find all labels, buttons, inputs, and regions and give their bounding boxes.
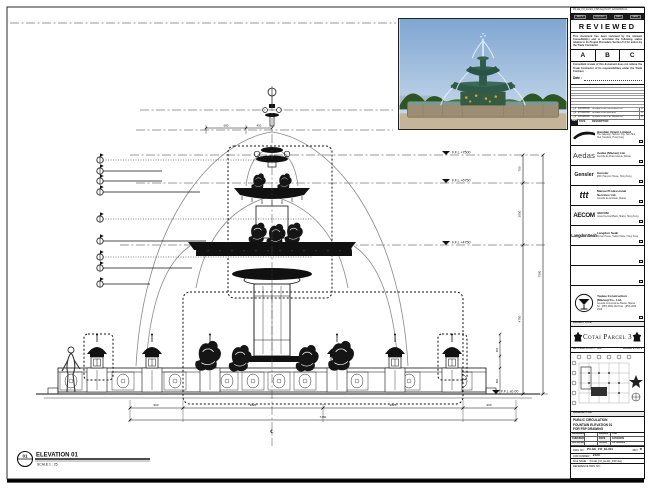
- svg-text:800: 800: [495, 378, 499, 383]
- date-fill-line[interactable]: [584, 77, 642, 81]
- gensler-logo: Gensler: [571, 172, 597, 178]
- handian-swoosh-icon: [571, 131, 597, 140]
- consultant-row-langdonseah: LangdonSeah Langdon Seah Dorset House, T…: [571, 226, 644, 246]
- consultant-panel: Handian Orient Limited The Gateway, Harb…: [571, 126, 644, 286]
- bottom-dimensions: 900 2825 2825 900 7450 ℄: [129, 400, 518, 435]
- svg-text:4750: 4750: [518, 315, 522, 322]
- consultant-row-handian: Handian Orient Limited The Gateway, Harb…: [571, 126, 644, 146]
- view-title: 01 ELEVATION 01 SCALE 1 : 25: [18, 452, 151, 467]
- key-plan-drawing: [571, 353, 644, 411]
- revision-table: △1 10/03/2009 ISSUED FOR INFORMATION A △…: [571, 85, 644, 126]
- mps-logo: ttt: [571, 190, 597, 201]
- stamp-grade-row: A B C: [571, 49, 644, 62]
- view-scale-label: SCALE 1 : 25: [37, 463, 58, 467]
- svg-text:2000: 2000: [518, 210, 522, 217]
- aecom-logo: AECOM: [571, 212, 597, 219]
- photo-inset: [398, 18, 568, 130]
- fountain-photo: [399, 19, 567, 129]
- centreline-symbol-icon: ℄: [269, 429, 274, 435]
- consultant-row-gensler: Gensler Gensler 28/F, Harcourt House, Ho…: [571, 166, 644, 186]
- revision-table-header: REV DATE DESCRIPTION: [571, 120, 644, 125]
- svg-text:7450: 7450: [320, 415, 327, 419]
- reviewed-stamp: REC'D DOC NO. REV DATE REVIEWED This doc…: [571, 14, 644, 85]
- key-plan: [571, 353, 644, 412]
- project-title-row: Cotai Parcel 3: [571, 327, 644, 348]
- contractor-block: Yaulee Construction (Macau) Co., Ltd. Av…: [571, 286, 644, 322]
- date-label: Date :: [573, 77, 582, 81]
- svg-text:900: 900: [486, 403, 491, 407]
- stamp-date-row: Date :: [571, 75, 644, 84]
- svg-text:01: 01: [22, 454, 28, 459]
- level-label: F.F.L ±0.00: [501, 390, 518, 394]
- consultant-checkbox[interactable]: [639, 280, 643, 284]
- rev-value: B: [640, 448, 642, 452]
- view-title-label: ELEVATION 01: [36, 453, 78, 459]
- svg-text:2825: 2825: [390, 403, 397, 407]
- consultant-checkbox[interactable]: [639, 260, 643, 264]
- svg-text:900: 900: [153, 403, 158, 407]
- svg-text:680: 680: [224, 124, 229, 128]
- consultant-checkbox[interactable]: [639, 240, 643, 244]
- stamp-paragraph-1: This document has been reviewed by the r…: [571, 33, 644, 49]
- consultant-row-empty: [571, 266, 644, 286]
- svg-text:750: 750: [518, 166, 522, 171]
- revision-marker-icon: △1: [571, 108, 578, 111]
- ornament-finial-icon: [632, 329, 642, 344]
- project-title: Cotai Parcel 3: [583, 333, 632, 341]
- drawing-title: PUBLIC CIRCULATION FOUNTAIN ELEVATION 01…: [571, 417, 644, 433]
- grade-c-cell[interactable]: C: [620, 50, 644, 61]
- contractor-checkbox[interactable]: [639, 316, 643, 320]
- stamp-paragraph-2: Consultant review of this document does …: [571, 62, 644, 75]
- top-dimensions: 680 450: [205, 124, 273, 135]
- consultant-checkbox[interactable]: [639, 140, 643, 144]
- langdonseah-logo: LangdonSeah: [571, 233, 597, 238]
- yaulee-martini-glass-icon: [571, 293, 597, 313]
- ornament-finial-icon: [573, 329, 583, 344]
- vertical-dimensions: 750 2000 4750 7500 450 800: [495, 154, 548, 396]
- reference-row: REFERENCE DWG NO :: [571, 464, 644, 468]
- grade-a-cell[interactable]: A: [571, 50, 596, 61]
- consultant-checkbox[interactable]: [639, 180, 643, 184]
- level-label: F.F.L +4750: [452, 241, 471, 245]
- consultant-checkbox[interactable]: [639, 220, 643, 224]
- consultant-row-aedas: Aedas Aedas (Macau) Ltd. Avenida da Prai…: [571, 146, 644, 166]
- signoff-fields: DESIGNED DRAWN CAD CHECKED - DATE 12/04/…: [571, 433, 644, 447]
- drawing-sheet: F.F.L +7500 F.F.L +6750 F.F.L +4750 F.F.…: [0, 0, 650, 488]
- reviewed-title: REVIEWED: [571, 20, 644, 33]
- consultant-row-empty: [571, 246, 644, 266]
- file-name: P3-GE_FO_EL401_FSP.dwg: [590, 460, 622, 463]
- job-number: 2123: [593, 454, 600, 458]
- svg-text:450: 450: [257, 124, 262, 128]
- level-label: F.F.L +7500: [452, 151, 471, 155]
- consultant-row-mps: ttt Macau Professional Services Ltd. Ave…: [571, 186, 644, 206]
- aedas-logo: Aedas: [571, 151, 597, 160]
- revision-marker-icon: △2: [571, 112, 578, 115]
- svg-text:2825: 2825: [250, 403, 257, 407]
- title-block-column: P3-GE_FO_EL401_FSP.dwg PLOT: 12/04/2009 …: [570, 7, 645, 479]
- consultant-checkbox[interactable]: [639, 200, 643, 204]
- consultant-checkbox[interactable]: [639, 160, 643, 164]
- grade-b-cell[interactable]: B: [596, 50, 621, 61]
- svg-text:7500: 7500: [538, 270, 542, 277]
- basin-wall: [36, 368, 540, 398]
- level-label: F.F.L +6750: [452, 179, 471, 183]
- dwg-no: P3-GE_FO_EL401: [587, 448, 613, 452]
- consultant-row-aecom: AECOM AECOM Grand Central Plaza, Shatin,…: [571, 206, 644, 226]
- svg-text:450: 450: [495, 347, 499, 352]
